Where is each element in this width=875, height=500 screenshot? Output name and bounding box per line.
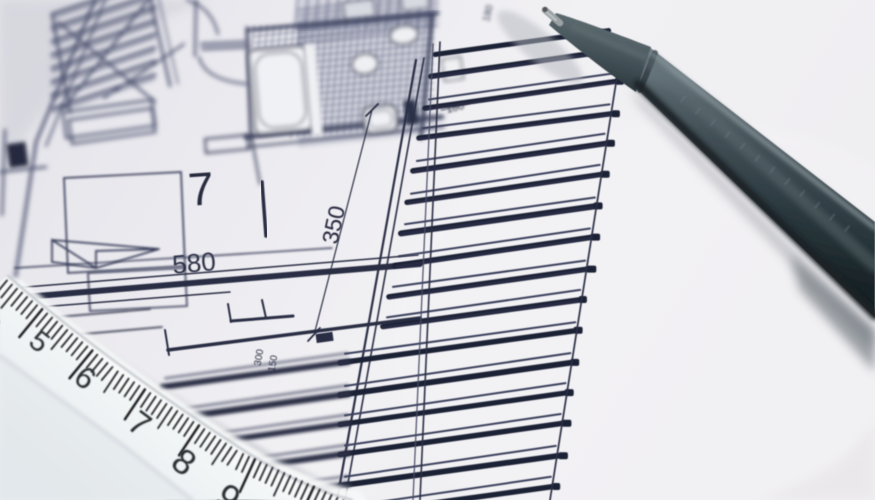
svg-text:7: 7	[186, 162, 215, 216]
